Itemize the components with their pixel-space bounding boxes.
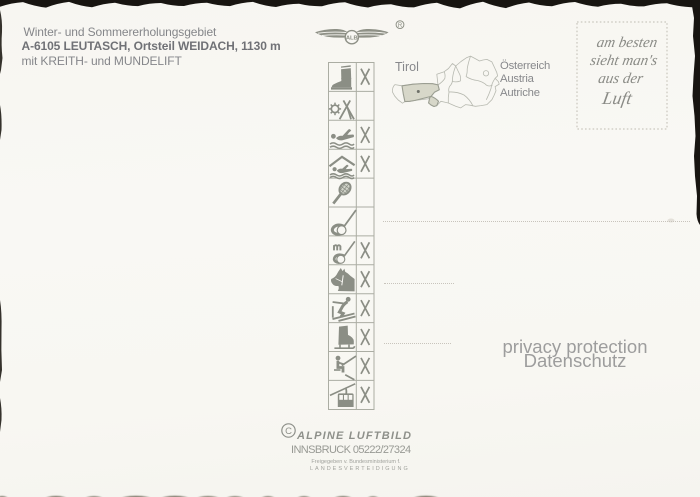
svg-text:ALB: ALB <box>346 36 358 42</box>
svg-text:C: C <box>285 426 292 437</box>
svg-text:R: R <box>398 23 403 29</box>
